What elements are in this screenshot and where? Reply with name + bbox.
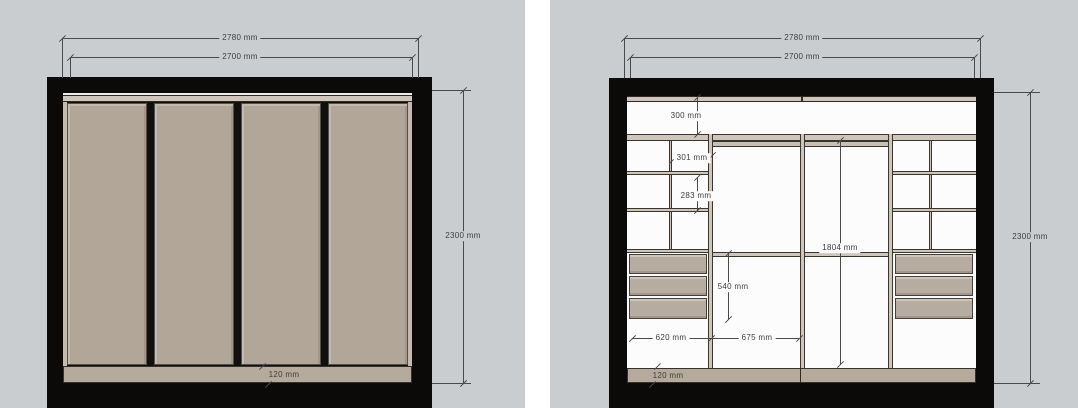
drawer <box>629 276 707 296</box>
right-cubby-divider <box>929 141 932 252</box>
dimension-label-height: 2300 mm <box>442 231 483 241</box>
dimension-label-outer-width: 2780 mm <box>781 33 822 43</box>
drawer <box>629 254 707 274</box>
dimension-label-drawer-stack: 540 mm <box>715 282 752 292</box>
left-elevation-panel: 2780 mm 2700 mm 2300 mm 120 mm <box>0 0 525 408</box>
dimension-label-plinth: 120 mm <box>650 371 687 381</box>
partition-middle <box>800 134 805 368</box>
drawer <box>629 298 707 319</box>
sliding-door-2 <box>154 103 234 365</box>
extension-line <box>994 92 1040 93</box>
dimension-label-lower-cubby: 283 mm <box>678 191 715 201</box>
sliding-door-4 <box>328 103 408 365</box>
right-drawer-top-shelf <box>893 249 976 253</box>
extension-line <box>62 38 63 78</box>
dimension-label-outer-width: 2780 mm <box>219 33 260 43</box>
left-cubby-shelf-1 <box>627 171 708 175</box>
extension-line <box>980 38 981 78</box>
dimension-label-middle-bay: 675 mm <box>739 333 776 343</box>
dimension-label-inner-width: 2700 mm <box>219 52 260 62</box>
right-cubby-shelf-1 <box>893 171 976 175</box>
dimension-label-height: 2300 mm <box>1009 232 1050 242</box>
extension-line <box>70 57 71 78</box>
sliding-door-3 <box>241 103 321 365</box>
plinth <box>63 366 412 383</box>
dimension-label-hanging-height: 1804 mm <box>819 243 860 253</box>
extension-line <box>994 383 1040 384</box>
left-drawer-top-shelf <box>627 249 708 253</box>
dimension-label-left-bay: 620 mm <box>653 333 690 343</box>
drawer <box>895 254 973 274</box>
drawer <box>895 298 973 319</box>
hanging-rail-right-bay <box>805 141 888 147</box>
dimension-label-inner-width: 2700 mm <box>781 52 822 62</box>
sliding-door-1 <box>67 103 147 365</box>
right-side-panel <box>408 102 412 366</box>
two-view-wardrobe-drawing: 2780 mm 2700 mm 2300 mm 120 mm <box>0 0 1078 408</box>
dimension-label-plinth: 120 mm <box>266 370 303 380</box>
sliding-track-rail <box>63 95 412 102</box>
top-rail-seam <box>801 96 803 102</box>
dimension-label-top-shelf: 300 mm <box>668 111 705 121</box>
extension-line <box>974 57 975 78</box>
partition-left <box>708 134 713 368</box>
plinth-seam <box>800 368 801 383</box>
left-cubby-divider <box>669 141 672 252</box>
extension-line <box>624 38 625 78</box>
extension-line <box>630 57 631 78</box>
extension-line <box>432 90 471 91</box>
right-cubby-shelf-2 <box>893 208 976 212</box>
extension-line <box>412 57 413 78</box>
drawer <box>895 276 973 296</box>
extension-line <box>432 383 471 384</box>
extension-line <box>418 38 419 78</box>
hanging-rail-left-bay <box>713 141 800 147</box>
dimension-label-upper-cubby: 301 mm <box>674 153 711 163</box>
